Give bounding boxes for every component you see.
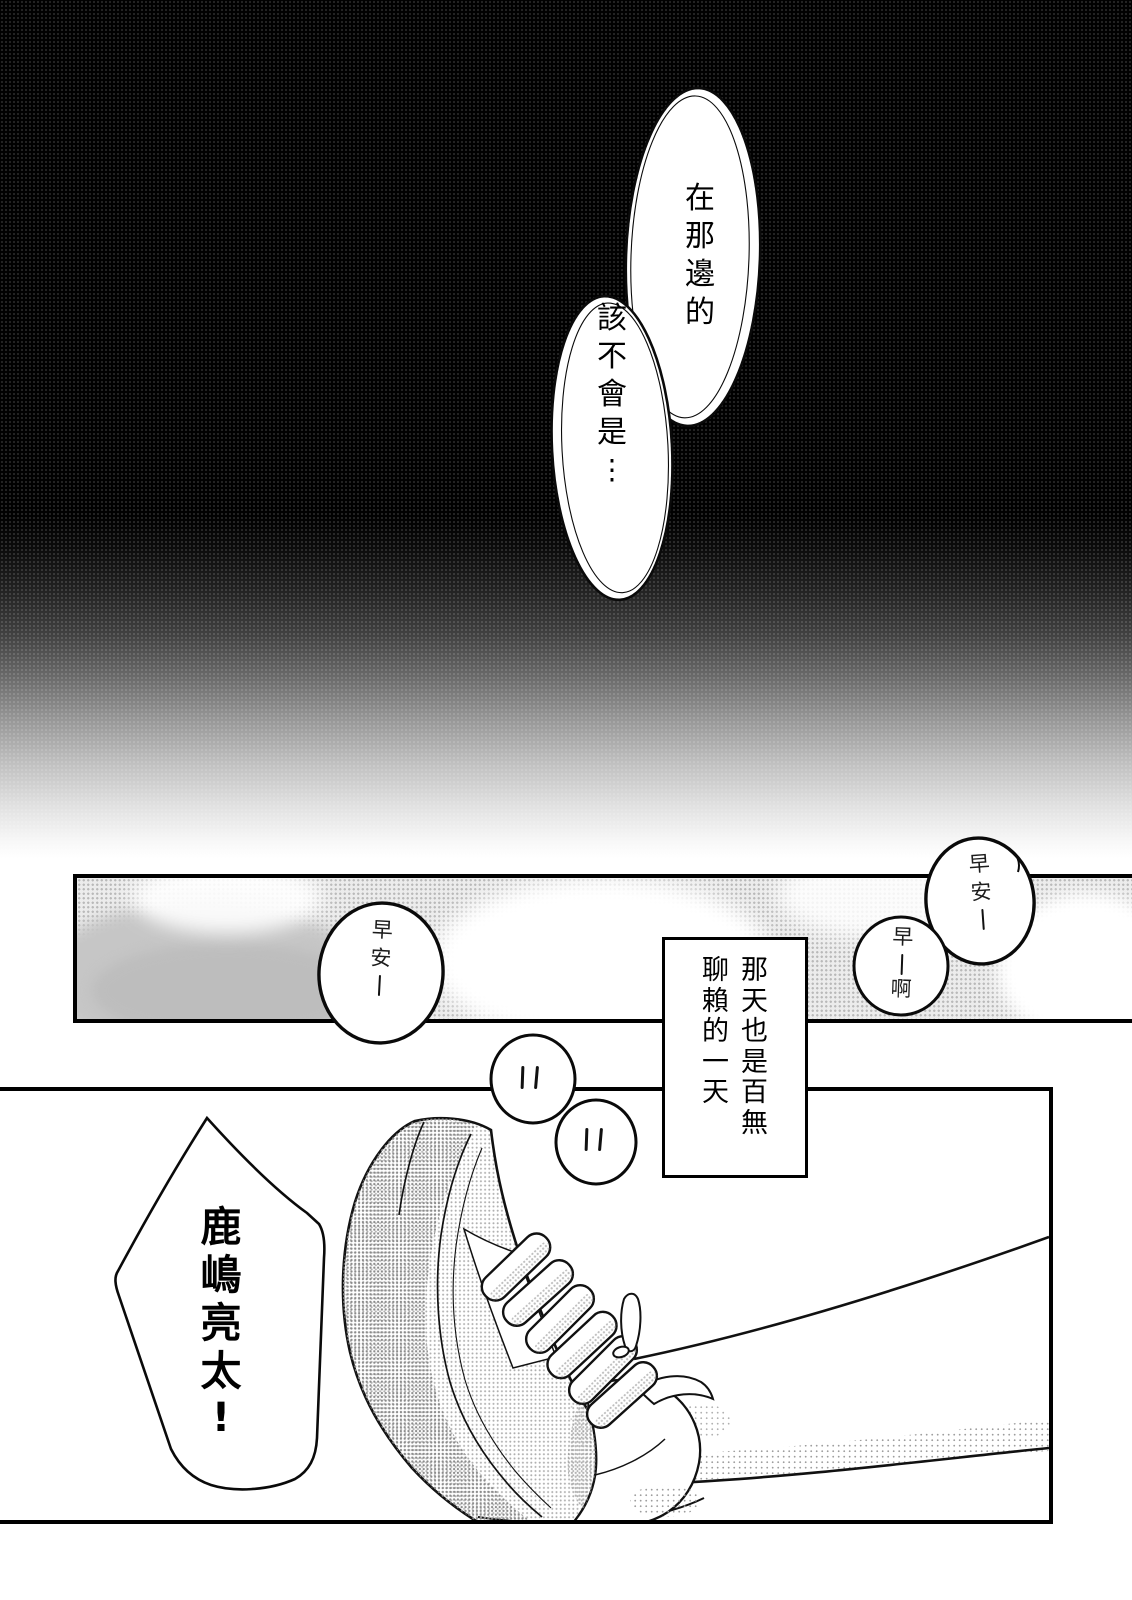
- leg-top-contour: [634, 1237, 1049, 1359]
- greeting-reply-text: 早啊: [886, 923, 919, 1004]
- pause-marks-1: [521, 1066, 537, 1089]
- sneaker-and-leg-art: [0, 1091, 1049, 1520]
- greeting-right-text: 早安: [963, 849, 998, 931]
- pause-marks-2: [585, 1128, 601, 1151]
- narration-col-right: 那天也是百無: [741, 956, 768, 1175]
- manga-page: 在那邊的 該不會是⋮: [0, 0, 1132, 1600]
- top-speech-bubbles-art: [0, 0, 1132, 858]
- speech-bubble-1-text: 在那邊的: [681, 180, 719, 332]
- cloud-white-right: [997, 893, 1132, 1023]
- narration-col-left: 聊賴的一天: [702, 956, 729, 1175]
- shout-text: 鹿嶋亮太!: [196, 1203, 246, 1441]
- speech-bubble-2-text: 該不會是⋮: [593, 300, 631, 484]
- pause-stroke: [534, 1066, 538, 1089]
- shoe-panel: [0, 1087, 1053, 1524]
- greeting-left-text: 早安: [364, 915, 398, 996]
- narration-box: 那天也是百無 聊賴的一天: [662, 937, 808, 1178]
- pause-stroke: [585, 1128, 588, 1151]
- cloud-white-upper: [777, 874, 987, 938]
- pause-stroke: [521, 1066, 524, 1089]
- under-ankle-stipple: [630, 1485, 700, 1517]
- lace-aglet: [621, 1294, 640, 1352]
